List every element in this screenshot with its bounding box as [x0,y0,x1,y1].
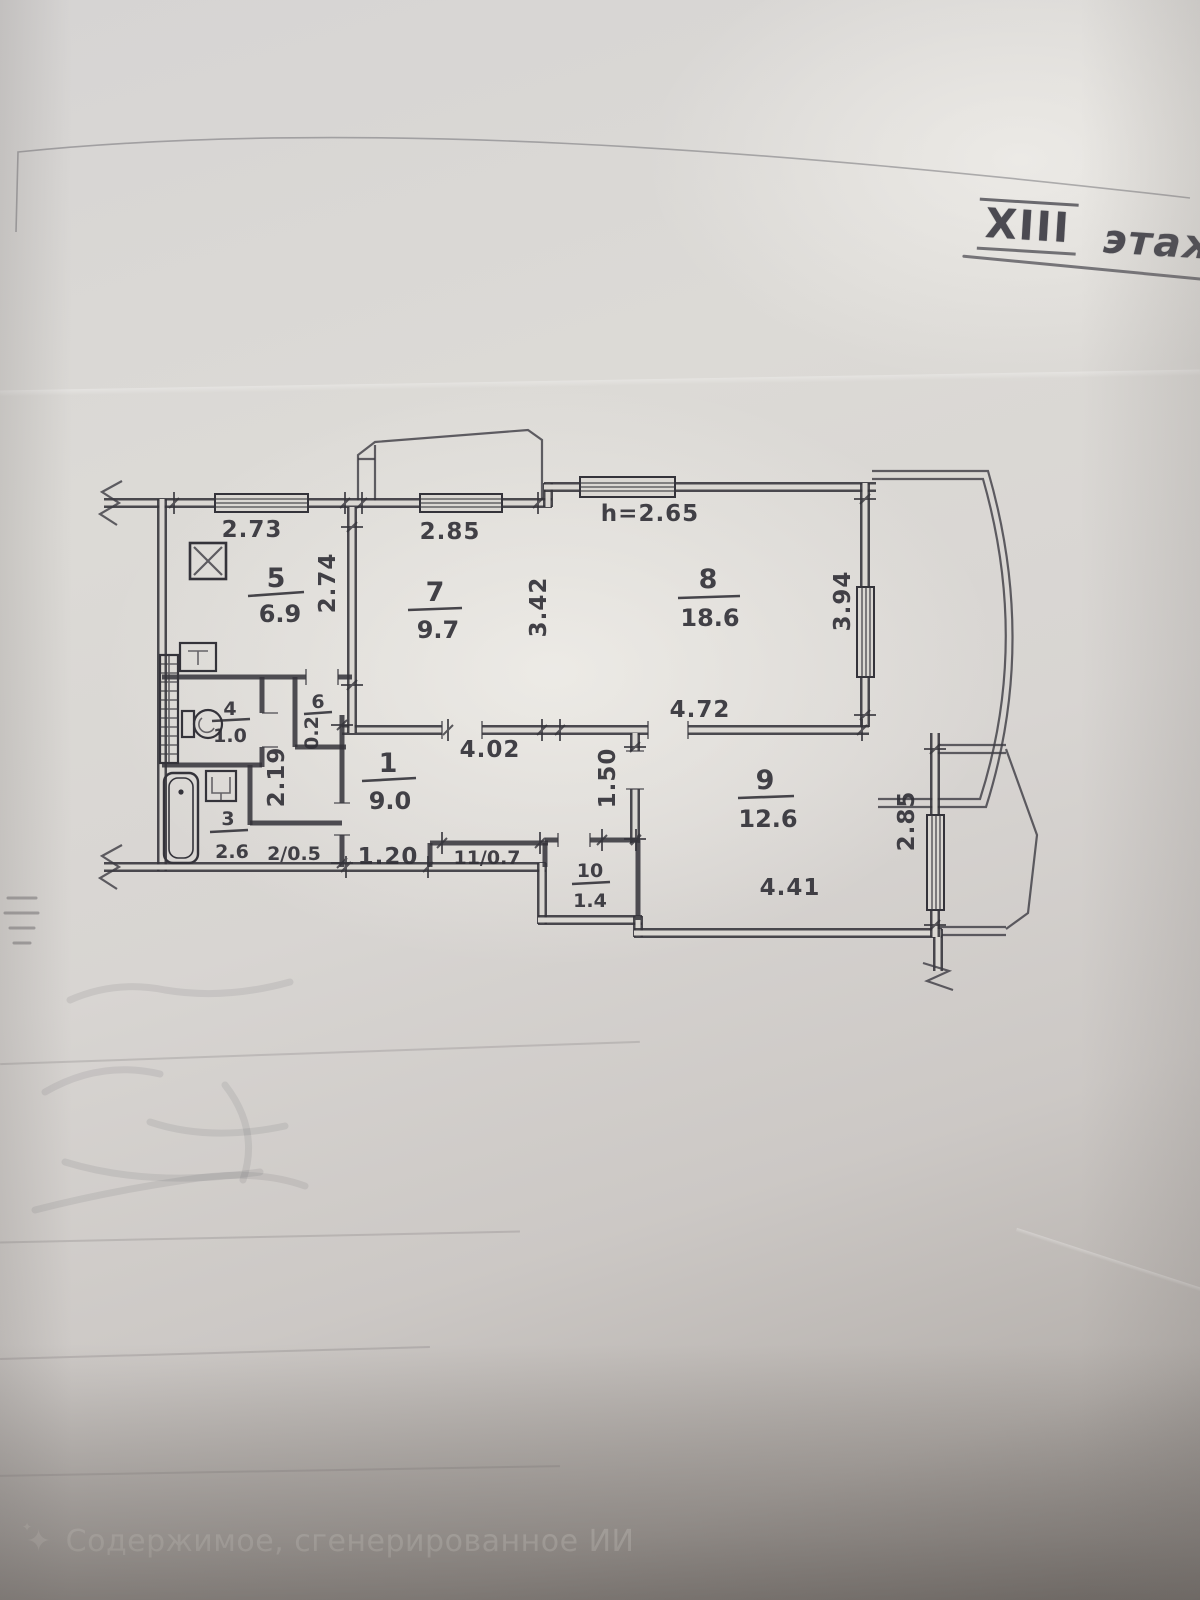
bathtub-icon [164,773,198,863]
dim-1-20: 1.20 [358,844,419,870]
window-room7 [420,494,502,512]
room-label-4: 4 1.0 [212,698,250,747]
stove-icon [190,543,226,579]
ai-watermark: ✦ Содержимое, сгенерированное ИИ [26,1524,634,1559]
room9-number: 9 [756,765,775,796]
room-label-7: 7 9.7 [408,577,462,644]
dim-1-50: 1.50 [595,748,621,809]
dim-4-41: 4.41 [760,875,821,901]
room-label-2: 2/0.5 [267,843,321,865]
room3-number: 3 [221,808,234,830]
floor-label: XIIIэтаж [977,198,1200,271]
paper-crease [1016,1228,1200,1312]
window-room8-balcony [857,587,874,677]
paper-crease [0,370,1200,397]
balcony-room8 [872,471,1013,807]
balcony-room7 [358,430,542,503]
room-label-1: 1 9.0 [362,748,416,815]
dim-2-74: 2.74 [315,553,341,614]
kitchen-sink-icon [180,643,216,671]
room11-label: 11/0.7 [453,847,520,869]
room2-label: 2/0.5 [267,843,321,865]
room6-number: 6 [311,691,324,713]
dim-2-85-top: 2.85 [420,519,481,545]
room1-number: 1 [379,748,398,779]
room5-area: 6.9 [259,600,302,628]
room1-area: 9.0 [369,787,412,815]
washbasin-icon [206,771,236,801]
room7-area: 9.7 [417,616,460,644]
room5-number: 5 [267,563,286,594]
dimension-labels: 2.73 2.85 h=2.65 2.74 3.42 3.94 4.72 4.0… [222,501,920,901]
room10-area: 1.4 [573,890,607,912]
dim-4-02: 4.02 [460,737,521,763]
floorplan-drawing: 5 6.9 7 9.7 8 18.6 9 12.6 1 [90,415,1050,995]
paper-crease [0,1231,520,1244]
dim-2-85-right: 2.85 [894,791,920,852]
room8-area: 18.6 [680,604,739,632]
balcony-room9 [935,745,1037,935]
dim-4-72: 4.72 [670,697,731,723]
room-label-8: 8 18.6 [678,564,740,632]
room9-area: 12.6 [738,805,797,833]
room-label-10: 10 1.4 [572,860,610,912]
paper-crease [0,1346,430,1360]
edge-scribbles [5,898,38,943]
window-room8-top [580,477,675,497]
room-label-11: 11/0.7 [453,847,520,869]
room6-area: 0.2 [301,716,323,750]
room-label-9: 9 12.6 [738,765,798,833]
floor-word: этаж [1102,216,1200,269]
ghost-showthrough [35,982,305,1210]
watermark-text: Содержимое, сгенерированное ИИ [66,1524,635,1559]
room-label-3: 3 2.6 [210,808,249,863]
window-room9-balcony [927,815,944,910]
dim-3-94: 3.94 [830,571,856,632]
room3-area: 2.6 [215,841,249,863]
dim-2-73: 2.73 [222,517,283,543]
dim-3-42: 3.42 [526,577,552,638]
room7-number: 7 [426,577,445,608]
room10-number: 10 [577,860,603,882]
room8-number: 8 [699,564,718,595]
sparkle-icon: ✦ [26,1527,52,1557]
room-label-5: 5 6.9 [248,563,304,628]
floor-roman-numeral: XIII [977,198,1079,256]
ceiling-height-note: h=2.65 [601,501,699,527]
scanned-floorplan-photo: XIIIэтаж [0,0,1200,1600]
room4-area: 1.0 [213,725,247,747]
room-label-6: 6 0.2 [301,691,332,750]
dim-2-19: 2.19 [264,747,290,808]
room4-number: 4 [223,698,236,720]
window-room5 [215,494,308,512]
paper-crease [0,1465,560,1477]
paper-crease [0,1041,640,1065]
